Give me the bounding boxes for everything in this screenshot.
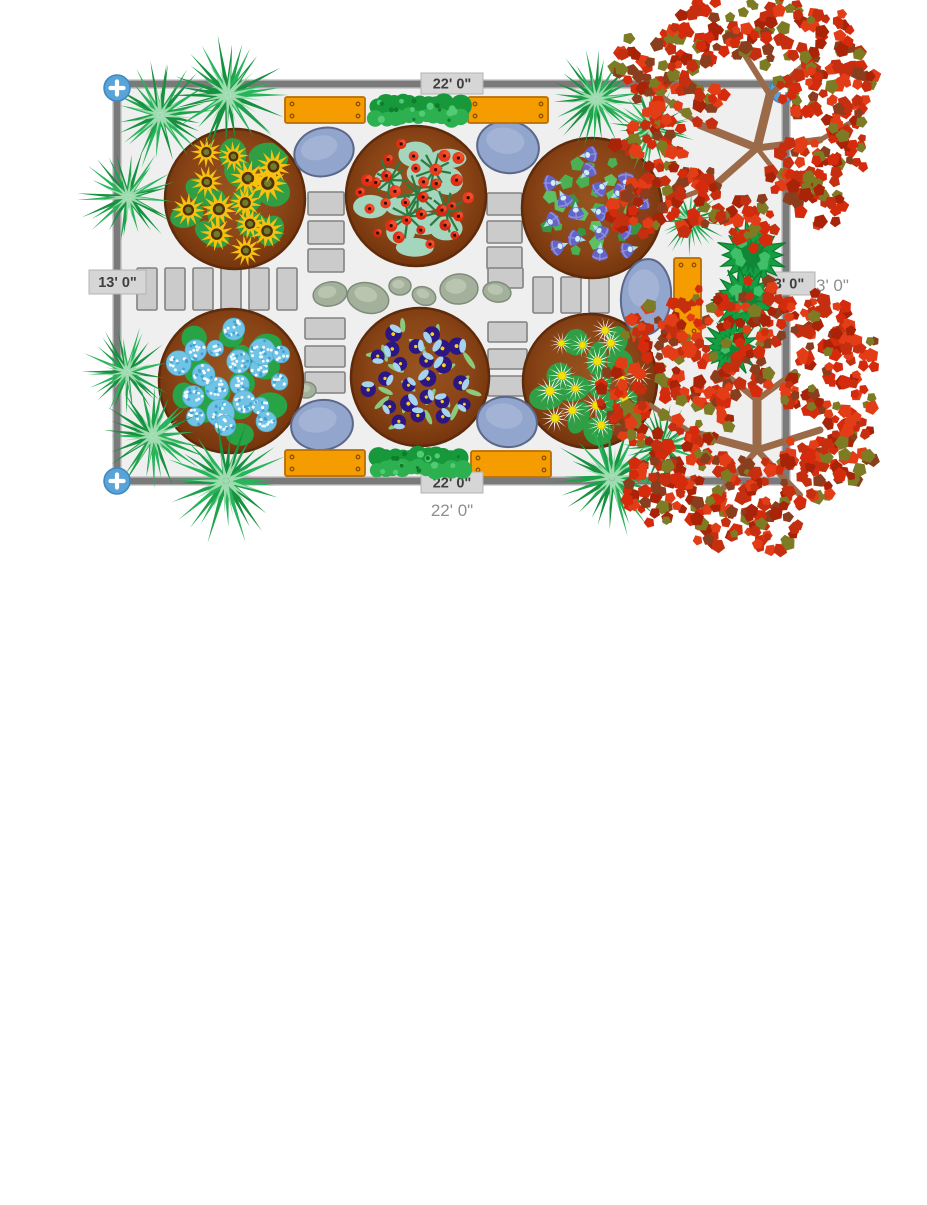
plan-canvas: 22' 0" 13' 0" 3' 0" 22' 0" 22' 0" 3' 0" bbox=[0, 0, 927, 1200]
resize-handle[interactable] bbox=[104, 468, 130, 494]
paving-stone[interactable] bbox=[249, 268, 269, 310]
bench-planter[interactable] bbox=[468, 97, 548, 123]
garden-planner-app: 22' 0" 13' 0" 3' 0" 22' 0" 22' 0" 3' 0" bbox=[0, 0, 927, 1205]
paving-stone[interactable] bbox=[488, 322, 527, 342]
bench-planter[interactable] bbox=[285, 450, 365, 476]
bench-planter[interactable] bbox=[285, 97, 365, 123]
flower-bed-morning-glory[interactable] bbox=[522, 138, 662, 278]
paving-stone[interactable] bbox=[487, 193, 522, 215]
paving-stone[interactable] bbox=[308, 249, 344, 272]
flower-bed-pansies[interactable] bbox=[351, 308, 489, 446]
paving-stone[interactable] bbox=[487, 247, 522, 269]
paving-stone[interactable] bbox=[165, 268, 185, 310]
flower-bed-hydrangeas[interactable] bbox=[159, 309, 303, 453]
paving-stone[interactable] bbox=[305, 318, 345, 339]
rock[interactable] bbox=[389, 277, 411, 295]
dimension-text-bottom: 22' 0" bbox=[431, 501, 473, 520]
paving-stone[interactable] bbox=[308, 221, 344, 244]
dimension-tag-text: 22' 0" bbox=[433, 77, 472, 93]
dimension-tag-text: 13' 0" bbox=[98, 275, 137, 291]
resize-handle[interactable] bbox=[104, 75, 130, 101]
dimension-tag-text: 3' 0" bbox=[774, 277, 804, 293]
paving-stone[interactable] bbox=[487, 221, 522, 243]
paving-stone[interactable] bbox=[308, 192, 344, 215]
paving-stone[interactable] bbox=[305, 346, 345, 367]
paving-stone[interactable] bbox=[193, 268, 213, 310]
paving-stone[interactable] bbox=[488, 376, 527, 396]
paving-stone[interactable] bbox=[221, 268, 241, 310]
paving-stone[interactable] bbox=[488, 349, 527, 369]
hedge[interactable] bbox=[367, 93, 472, 128]
paving-stone[interactable] bbox=[561, 277, 581, 313]
paving-stone[interactable] bbox=[589, 277, 609, 313]
flower-bed-poppies[interactable] bbox=[346, 126, 486, 266]
paving-stone[interactable] bbox=[277, 268, 297, 310]
paving-stone[interactable] bbox=[533, 277, 553, 313]
flower-bed-sunflowers[interactable] bbox=[165, 129, 305, 269]
dimension-tag-left: 13' 0" bbox=[89, 270, 146, 294]
dimension-text-right: 3' 0" bbox=[816, 276, 849, 295]
dimension-tag-top: 22' 0" bbox=[421, 73, 483, 94]
